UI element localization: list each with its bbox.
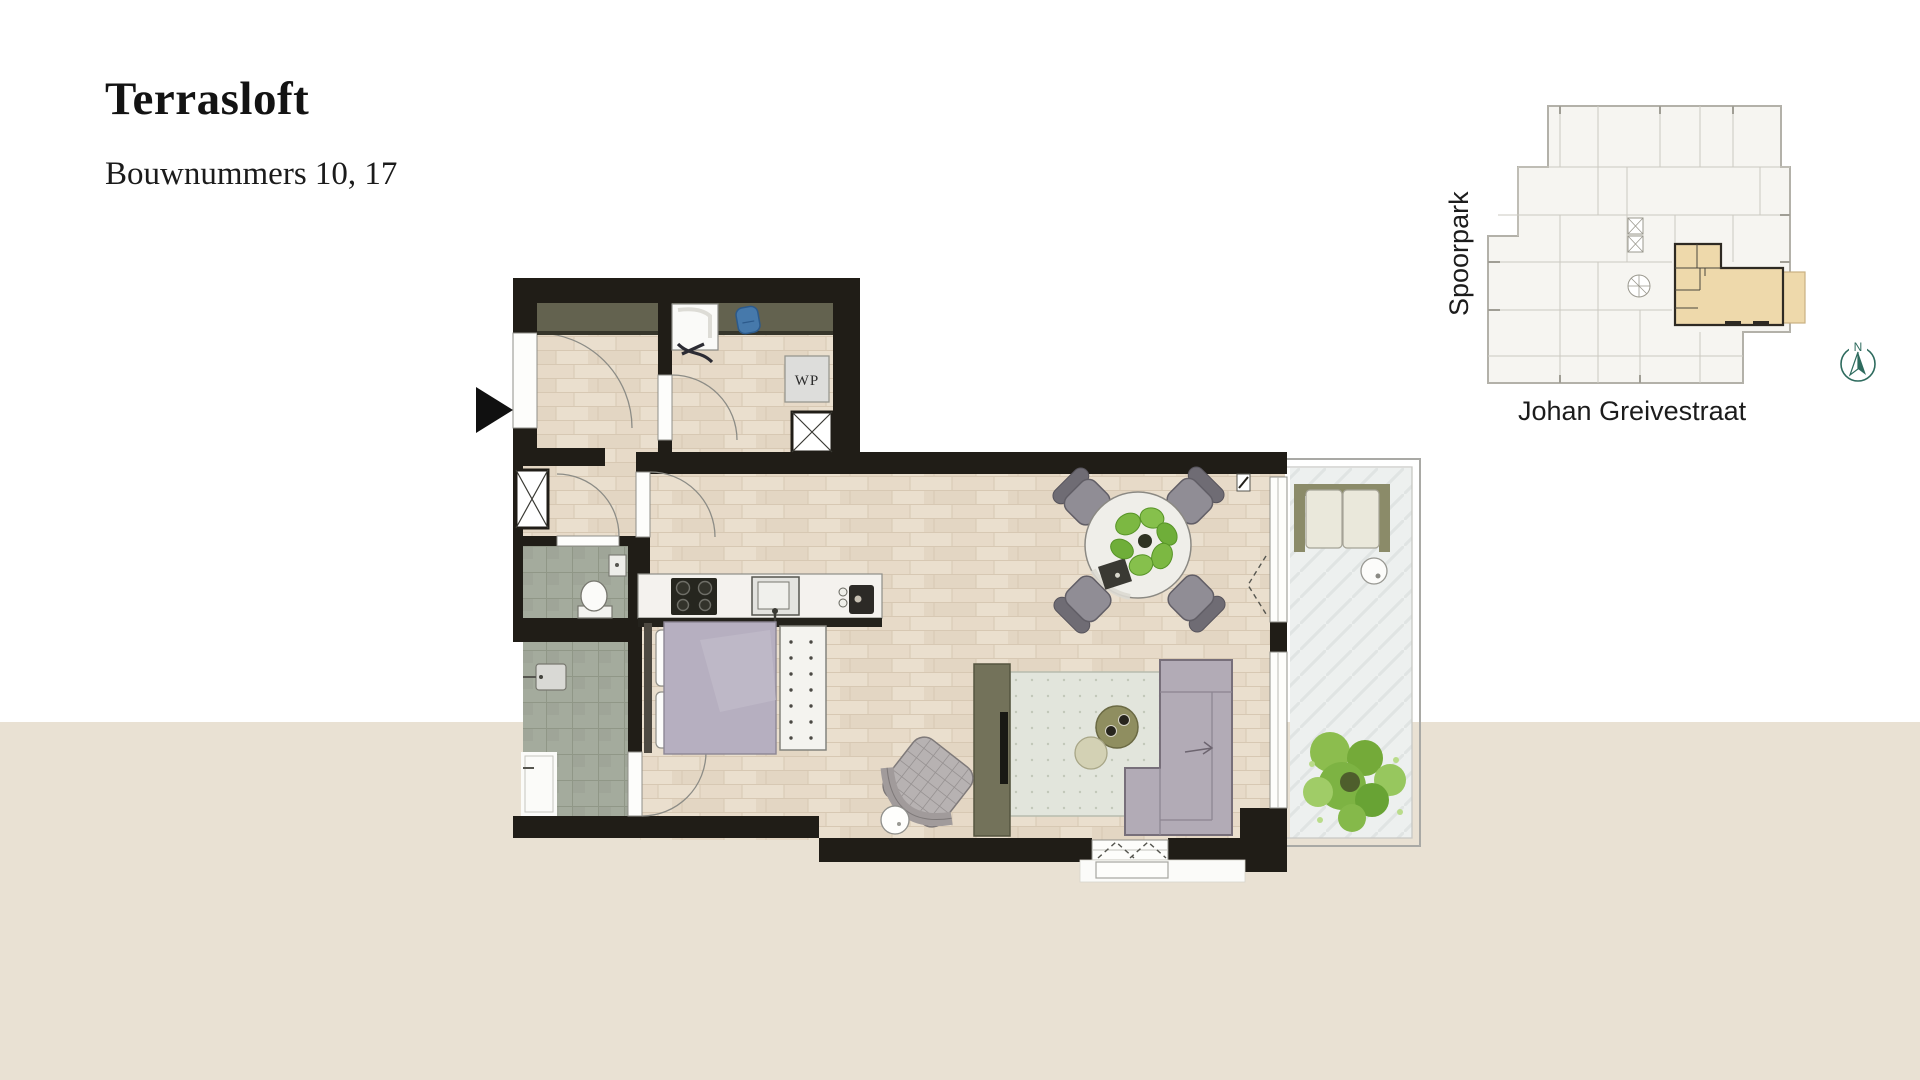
compass-needle-right bbox=[1858, 352, 1866, 375]
front-door bbox=[513, 333, 537, 428]
page-subtitle: Bouwnummers 10, 17 bbox=[105, 156, 397, 193]
door-mat bbox=[1096, 862, 1168, 878]
shower bbox=[521, 752, 557, 816]
compass-icon: N bbox=[1841, 340, 1875, 381]
wardrobe-hall bbox=[537, 303, 658, 335]
wp-label: WP bbox=[795, 373, 820, 389]
cooktop bbox=[671, 578, 717, 615]
hall-study-door bbox=[658, 375, 672, 440]
page-title: Terrasloft bbox=[105, 72, 309, 126]
heat-pump-unit: WP bbox=[785, 356, 829, 402]
shaft-wp bbox=[792, 412, 832, 452]
bed bbox=[644, 622, 776, 754]
closet bbox=[780, 626, 826, 750]
locator-highlight-terrace bbox=[1783, 272, 1805, 323]
bathroom-door bbox=[628, 752, 642, 816]
fontein-sink bbox=[609, 555, 626, 576]
brochure-page: WP bbox=[0, 0, 1920, 1080]
outdoor-sofa bbox=[1294, 484, 1390, 552]
wardrobe-edge bbox=[537, 331, 658, 335]
shaft-hall bbox=[516, 470, 548, 528]
floor-plan: WP bbox=[476, 278, 1420, 882]
compass-needle-left bbox=[1850, 352, 1858, 375]
tv bbox=[1000, 712, 1008, 784]
outdoor-table bbox=[1361, 558, 1387, 584]
locator-map bbox=[1488, 106, 1805, 383]
street-label: Johan Greivestraat bbox=[1518, 396, 1746, 427]
toilet-door bbox=[557, 536, 619, 546]
pouf bbox=[1075, 737, 1107, 769]
hall-living-door bbox=[636, 472, 650, 537]
blue-bag bbox=[735, 305, 761, 334]
outdoor-lamp bbox=[1237, 474, 1250, 491]
tv-cabinet bbox=[974, 664, 1010, 836]
kitchen-sink bbox=[752, 577, 799, 622]
side-table bbox=[881, 806, 909, 834]
park-label: Spoorpark bbox=[1444, 191, 1475, 316]
entrance-arrow bbox=[476, 387, 513, 433]
